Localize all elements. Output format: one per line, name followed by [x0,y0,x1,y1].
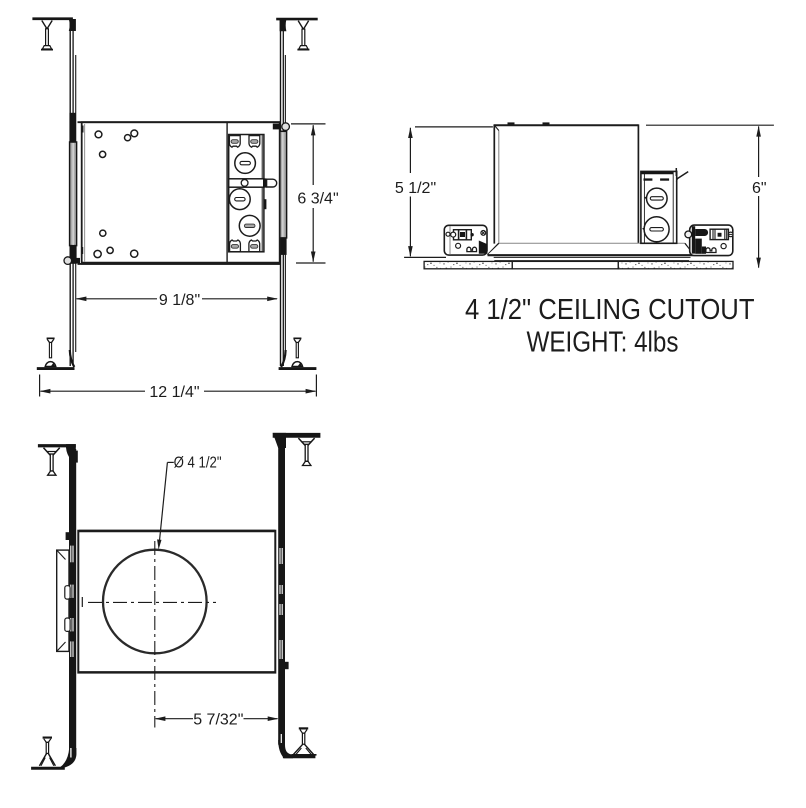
svg-text:Ø 4 1/2": Ø 4 1/2" [174,454,222,471]
svg-text:4 1/2" CEILING CUTOUT: 4 1/2" CEILING CUTOUT [465,294,755,326]
svg-text:WEIGHT: 4lbs: WEIGHT: 4lbs [527,326,679,358]
svg-text:6 3/4": 6 3/4" [297,191,338,208]
svg-text:5 7/32": 5 7/32" [193,711,243,728]
svg-text:12 1/4": 12 1/4" [149,384,199,401]
svg-text:6": 6" [752,180,767,197]
svg-text:5 1/2": 5 1/2" [395,180,436,197]
svg-text:9 1/8": 9 1/8" [159,292,200,309]
